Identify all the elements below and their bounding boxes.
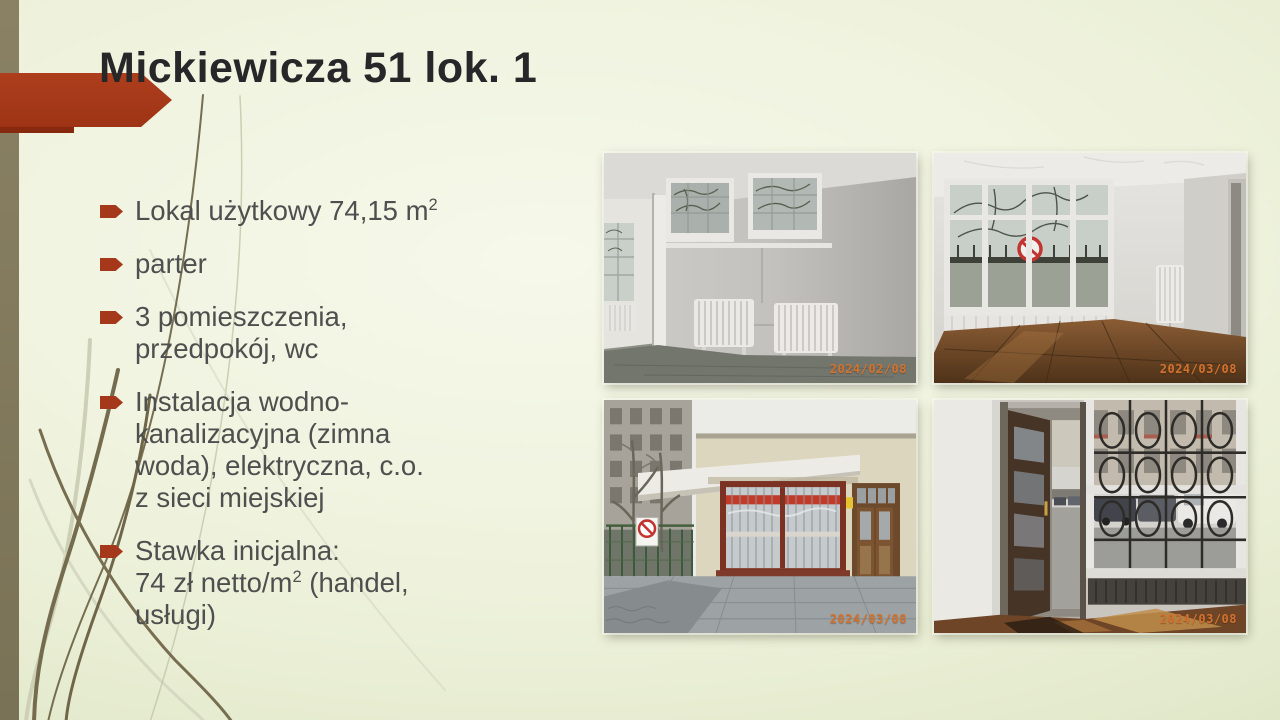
- photo-storefront-graphic: [604, 400, 916, 633]
- bullet-text: Instalacja wodno-kanalizacyjna (zimnawod…: [135, 386, 590, 514]
- bullet-item: parter: [100, 248, 590, 280]
- slide-title: Mickiewicza 51 lok. 1: [99, 44, 537, 93]
- bullet-text: Lokal użytkowy 74,15 m2: [135, 195, 590, 227]
- bullet-text: parter: [135, 248, 590, 280]
- photo-interior-corner-window: 2024/03/08: [934, 153, 1246, 383]
- photo-exterior-storefront: 2024/03/08: [604, 400, 916, 633]
- bullet-item: Lokal użytkowy 74,15 m2: [100, 195, 590, 227]
- bullet-list: Lokal użytkowy 74,15 m2parter3 pomieszcz…: [100, 195, 590, 652]
- photo-timestamp: 2024/03/08: [830, 612, 907, 626]
- photo-entrance-window-grille: 2024/03/08: [934, 400, 1246, 633]
- bullet-item: Stawka inicjalna:74 zł netto/m2 (handel,…: [100, 535, 590, 631]
- photo-timestamp: 2024/03/08: [1160, 612, 1237, 626]
- photo-interior-room-graphic: [604, 153, 916, 383]
- bullet-text: 3 pomieszczenia,przedpokój, wc: [135, 301, 590, 365]
- photo-entrance-graphic: [934, 400, 1246, 633]
- photo-timestamp: 2024/02/08: [830, 362, 907, 376]
- bullet-arrow-icon: [100, 311, 123, 324]
- bullet-text: Stawka inicjalna:74 zł netto/m2 (handel,…: [135, 535, 590, 631]
- bullet-arrow-icon: [100, 396, 123, 409]
- arrow-fold-shadow: [0, 127, 74, 133]
- bullet-item: 3 pomieszczenia,przedpokój, wc: [100, 301, 590, 365]
- bullet-arrow-icon: [100, 258, 123, 271]
- photo-timestamp: 2024/03/08: [1160, 362, 1237, 376]
- photo-corner-window-graphic: [934, 153, 1246, 383]
- presentation-slide: Mickiewicza 51 lok. 1 Lokal użytkowy 74,…: [0, 0, 1280, 720]
- bullet-item: Instalacja wodno-kanalizacyjna (zimnawod…: [100, 386, 590, 514]
- bullet-arrow-icon: [100, 545, 123, 558]
- photo-grid: 2024/02/08: [604, 153, 1246, 633]
- bullet-arrow-icon: [100, 205, 123, 218]
- photo-interior-room-with-radiators: 2024/02/08: [604, 153, 916, 383]
